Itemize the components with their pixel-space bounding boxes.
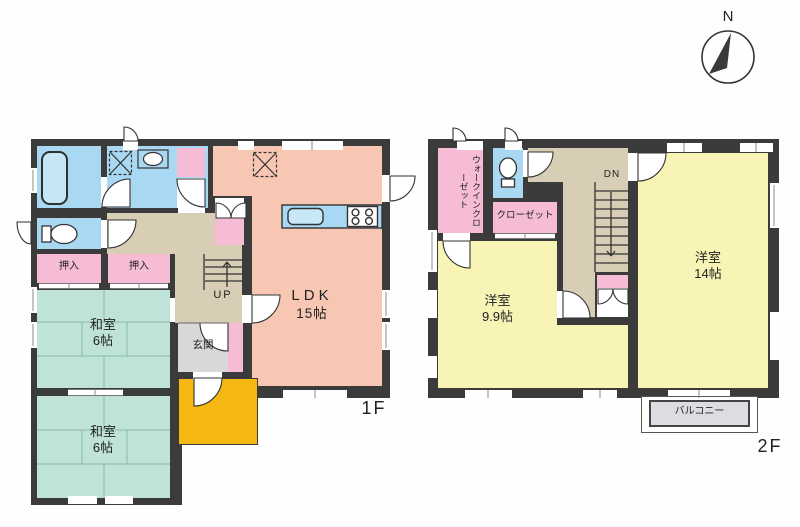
- door-gap-bathroom: [101, 177, 107, 207]
- door-gap-wic: [443, 233, 470, 241]
- oshiire-2-sliding-door: [110, 283, 168, 289]
- window-ldk-east-b: [382, 322, 390, 350]
- room-yoshitsu-small-ext: [557, 325, 628, 388]
- yoshitsu-large-size: 14帖: [653, 266, 763, 282]
- door-gap-washroom: [178, 208, 205, 213]
- label-walk-in-closet: ウォークインクローゼット: [440, 151, 482, 231]
- label-floor1: 1F: [352, 397, 396, 420]
- ldk-size: 15帖: [262, 306, 362, 323]
- label-washitsu-2: 和室 6帖: [53, 424, 153, 457]
- hall-2f-vertical: [563, 182, 595, 317]
- door-arc-backdoor: [390, 176, 415, 201]
- window-washroom-top: [123, 141, 138, 150]
- label-yoshitsu-small: 洋室 9.9帖: [438, 293, 557, 326]
- window-2f-left-b: [428, 290, 437, 318]
- bathtub: [41, 151, 68, 205]
- casement-window-toilet-1f: [17, 222, 31, 244]
- room-ldk-upper: [213, 146, 382, 196]
- stairs-closet-shelf: [597, 275, 628, 288]
- washroom-door-area: [177, 178, 205, 208]
- front-door-gap: [193, 372, 222, 380]
- room-toilet-1f: [37, 218, 101, 249]
- window-2f-top-wic: [457, 141, 483, 150]
- window-2f-bottom-b: [583, 390, 617, 398]
- washitsu-1-name: 和室: [90, 317, 116, 332]
- door-gap-yoshitsu-large: [628, 153, 638, 181]
- door-gap-yoshitsu-small: [557, 291, 563, 318]
- yoshitsu-small-size: 9.9帖: [438, 309, 557, 325]
- label-closet-2f: クローゼット: [493, 210, 557, 222]
- corridor-stairs-zone: [175, 254, 242, 290]
- room-ldk-mid: [252, 196, 382, 254]
- window-2f-right-a: [770, 183, 779, 228]
- label-washitsu-1: 和室 6帖: [53, 317, 153, 350]
- window-washitsu1-left-b: [29, 322, 37, 348]
- window-washitsu1-left-a: [29, 287, 37, 313]
- floor-plan-canvas: N LDK 15帖 和室 6帖 和室 6帖 押入 押入 玄関 UP 1F 洋室 …: [0, 0, 800, 527]
- compass-north-label: N: [710, 8, 746, 27]
- yoshitsu-small-name: 洋室: [484, 293, 510, 308]
- door-gap-toilet-2f: [523, 150, 528, 177]
- door-gap-toilet-1f: [101, 220, 107, 248]
- window-2f-bottom-a: [465, 390, 512, 398]
- label-floor2: 2F: [748, 435, 792, 458]
- ldk-pantry: [215, 218, 244, 245]
- door-gap-ldk: [242, 295, 252, 323]
- washitsu-2-name: 和室: [90, 424, 116, 439]
- window-bath-left: [29, 168, 37, 193]
- window-ldk-east-a: [382, 290, 390, 318]
- oshiire-1-sliding-door: [39, 283, 99, 289]
- washitsu-2-size: 6帖: [53, 440, 153, 456]
- window-2f-left-c: [428, 356, 437, 378]
- entrance-porch: [178, 378, 258, 445]
- window-ldk-south: [283, 390, 347, 398]
- sliding-door-washitsu-divider: [68, 389, 123, 396]
- window-2f-right-b: [770, 312, 779, 360]
- window-washitsu2-bottom-a: [68, 496, 97, 504]
- window-ldk-top: [282, 141, 343, 150]
- stairs-closet-doors-area: [597, 288, 628, 317]
- genkan-side-closet: [228, 323, 243, 372]
- stairs-2f-zone: [595, 182, 628, 272]
- label-yoshitsu-large: 洋室 14帖: [653, 250, 763, 283]
- window-2f-top-toilet: [505, 141, 522, 150]
- label-stairs-dn: DN: [597, 169, 627, 182]
- ldk-pantry-doors-area: [215, 198, 244, 218]
- window-ldk-top-small: [238, 141, 254, 150]
- window-2f-top-14b: [740, 143, 773, 152]
- label-ldk: LDK 15帖: [262, 287, 362, 323]
- yoshitsu-large-name: 洋室: [695, 250, 721, 265]
- label-oshiire-2: 押入: [109, 261, 169, 274]
- washitsu-1-size: 6帖: [53, 333, 153, 349]
- window-2f-left-a: [428, 230, 437, 272]
- washroom-cabinet: [177, 148, 205, 177]
- compass-icon: [702, 31, 754, 83]
- backdoor-gap-kitchen: [382, 175, 390, 202]
- room-toilet-2f: [493, 148, 523, 198]
- label-genkan: 玄関: [178, 339, 228, 352]
- label-stairs-up: UP: [204, 289, 242, 303]
- closet-2f-sliding-door: [495, 233, 555, 239]
- window-washitsu2-bottom-b: [105, 496, 133, 504]
- ldk-name: LDK: [291, 287, 332, 304]
- opening-washitsu1-corridor: [170, 298, 175, 322]
- label-oshiire-1: 押入: [39, 261, 99, 274]
- label-balcony: バルコニー: [649, 406, 750, 419]
- window-2f-top-14a: [667, 143, 702, 152]
